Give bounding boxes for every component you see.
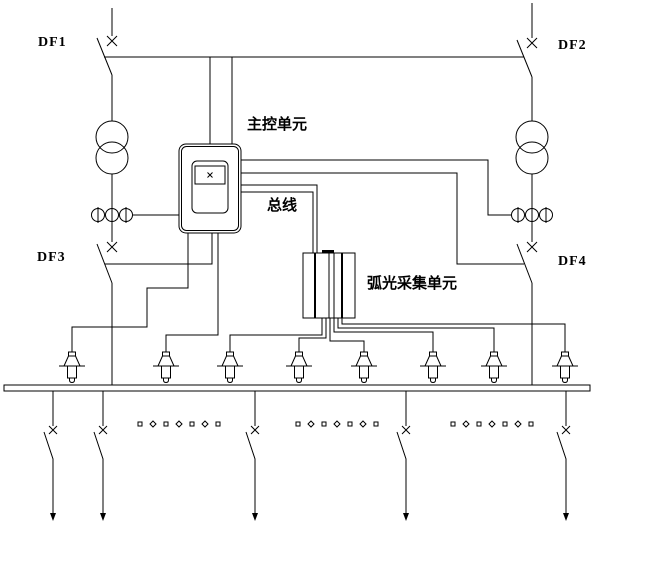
feeder-switch-icon (557, 391, 570, 521)
arc-sensor-icon (481, 352, 507, 383)
feeder-switch-icon (94, 391, 107, 521)
unit-top-tab (322, 250, 334, 253)
label-df4: DF4 (558, 255, 587, 269)
arc-sensor-icon (552, 352, 578, 383)
contact-x-icon (107, 36, 117, 46)
omitted-feeders-dots-3 (451, 421, 533, 427)
trip-wire-df3 (105, 233, 212, 264)
label-df1: DF1 (38, 36, 67, 50)
breaker-df4 (517, 223, 537, 385)
arc-sensor-icon (153, 352, 179, 383)
breaker-df2 (517, 3, 537, 121)
arc-sensor-icon (420, 352, 446, 383)
arc-sensor-icon (351, 352, 377, 383)
feeder-switch-icon (397, 391, 410, 521)
control-unit-feed-lines (210, 57, 232, 144)
feeder-switch-icon (246, 391, 259, 521)
schematic-canvas (0, 0, 646, 564)
arc-sensor-icon (286, 352, 312, 383)
sensor-wire-main-2 (166, 233, 218, 352)
sensor-wire-main-1 (72, 233, 188, 352)
feeder-switch-icon (44, 391, 57, 521)
outgoing-feeders (44, 391, 570, 521)
breaker-df3 (97, 223, 117, 385)
transformer-right-icon (516, 121, 548, 174)
label-df3: DF3 (37, 251, 66, 265)
schematic-page: DF1 DF2 DF3 DF4 主控单元 总线 弧光采集单元 (0, 0, 646, 564)
transformer-left-icon (96, 121, 128, 174)
main-control-unit (179, 144, 241, 233)
arc-sensor-icon (59, 352, 85, 383)
contact-x-icon (527, 242, 537, 252)
front-panel (192, 161, 228, 213)
busbar (4, 385, 590, 391)
omitted-feeders-dots-2 (296, 421, 378, 427)
label-arc-collection-unit: 弧光采集单元 (367, 276, 457, 291)
label-bus: 总线 (267, 198, 297, 213)
arc-collection-unit (303, 250, 355, 318)
trip-wire-df4 (241, 173, 524, 264)
arc-sensor-icon (217, 352, 243, 383)
label-main-control-unit: 主控单元 (247, 117, 307, 132)
arc-sensors (59, 352, 578, 383)
contact-x-icon (107, 242, 117, 252)
sensor-fan-wires (230, 318, 565, 352)
label-df2: DF2 (558, 39, 587, 53)
contact-x-icon (527, 38, 537, 48)
omitted-feeders-dots-1 (138, 421, 220, 427)
display-x-icon (208, 173, 213, 178)
breaker-df1 (97, 8, 117, 121)
ct-right-icon (512, 207, 553, 223)
ct-left-icon (92, 207, 133, 223)
